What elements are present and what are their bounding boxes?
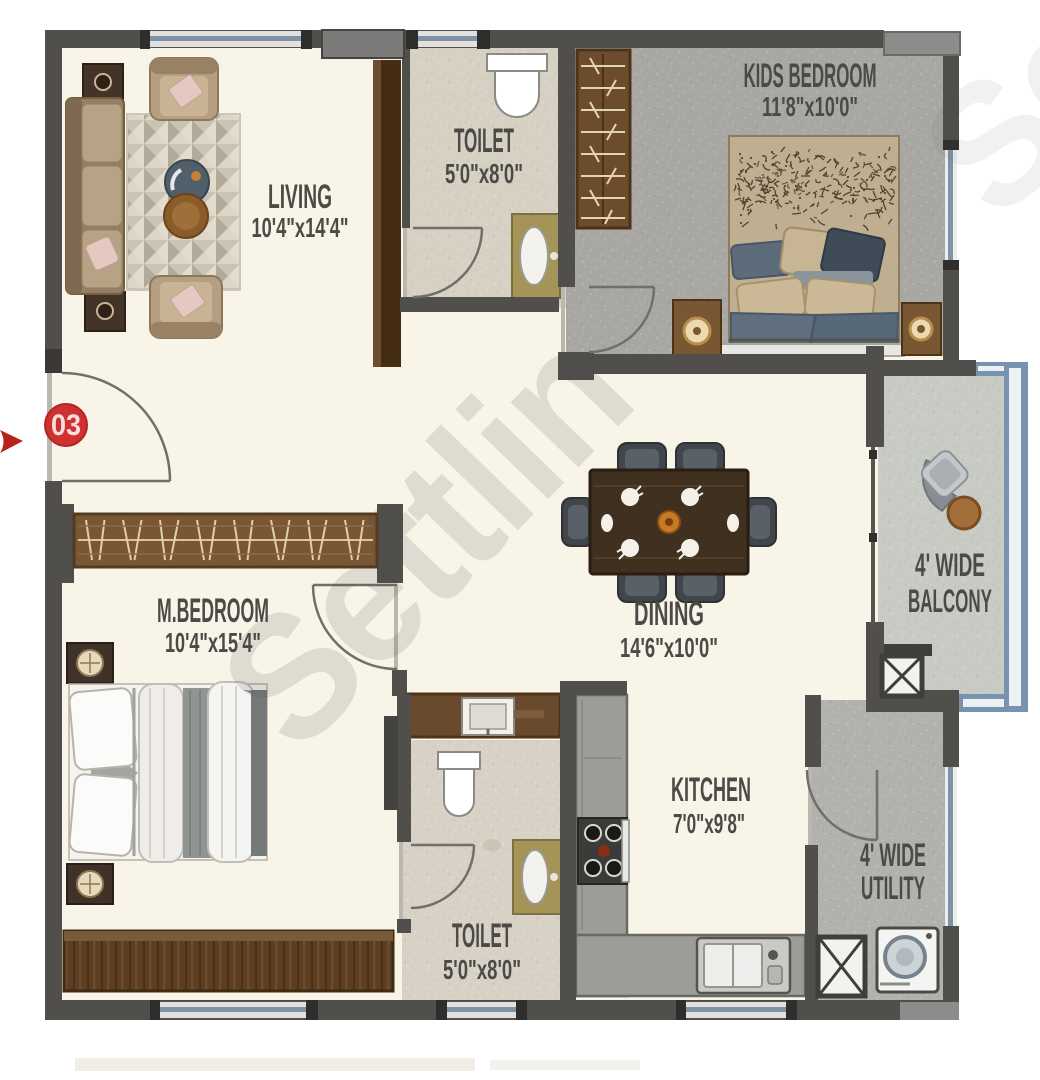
svg-text:DINING: DINING — [634, 595, 704, 633]
svg-text:7'0"x9'8": 7'0"x9'8" — [673, 808, 745, 839]
svg-text:4' WIDE: 4' WIDE — [915, 547, 985, 583]
svg-text:10'4"x14'4": 10'4"x14'4" — [251, 213, 348, 244]
svg-text:BALCONY: BALCONY — [908, 585, 992, 620]
svg-text:4' WIDE: 4' WIDE — [860, 839, 926, 874]
svg-text:TOILET: TOILET — [452, 917, 512, 955]
svg-text:03: 03 — [51, 409, 81, 443]
svg-text:LIVING: LIVING — [268, 177, 332, 215]
svg-text:UTILITY: UTILITY — [861, 872, 925, 907]
svg-text:11'8"x10'0": 11'8"x10'0" — [762, 92, 858, 123]
svg-text:KITCHEN: KITCHEN — [671, 770, 751, 809]
svg-text:5'0"x8'0": 5'0"x8'0" — [445, 158, 523, 190]
svg-text:10'4"x15'4": 10'4"x15'4" — [165, 627, 261, 658]
svg-text:M.BEDROOM: M.BEDROOM — [157, 591, 269, 630]
svg-text:5'0"x8'0": 5'0"x8'0" — [443, 954, 521, 986]
svg-text:KIDS BEDROOM: KIDS BEDROOM — [743, 57, 876, 95]
svg-text:14'6"x10'0": 14'6"x10'0" — [620, 633, 718, 664]
svg-text:TOILET: TOILET — [454, 122, 514, 160]
